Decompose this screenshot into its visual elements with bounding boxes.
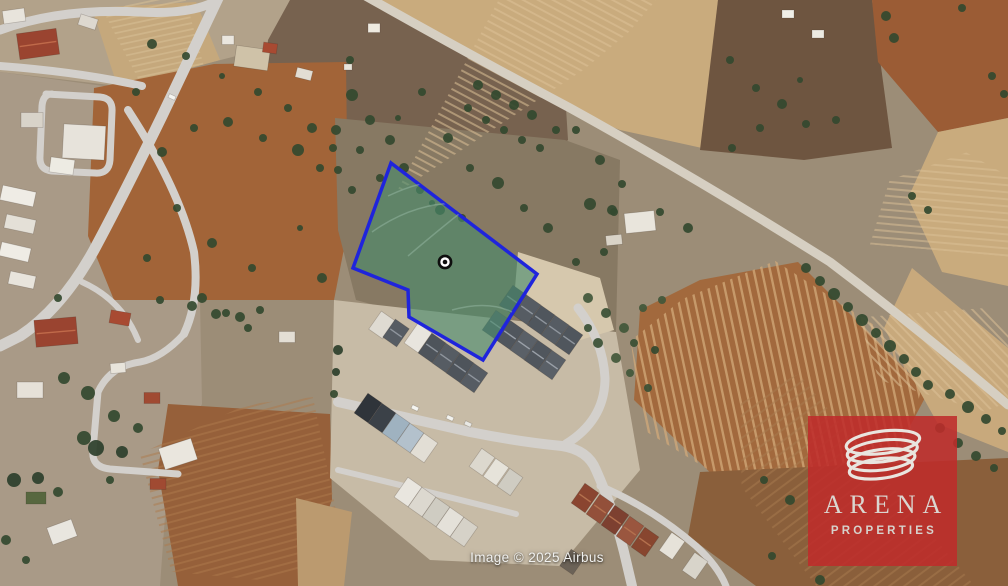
tree [1000, 90, 1008, 98]
building [16, 28, 59, 59]
tree [190, 124, 198, 132]
tree [726, 56, 734, 64]
tree [856, 314, 868, 326]
tree [998, 427, 1006, 435]
tree [924, 206, 932, 214]
tree [466, 164, 474, 172]
building [34, 317, 78, 348]
tree [584, 324, 592, 332]
tree [116, 446, 128, 458]
tree [527, 110, 537, 120]
tree [644, 384, 652, 392]
tree [911, 367, 921, 377]
tree [518, 136, 526, 144]
tree [889, 33, 899, 43]
field-darkscrub-ne [700, 0, 892, 160]
tree [482, 116, 490, 124]
tree [651, 346, 659, 354]
building [144, 393, 160, 404]
tree [595, 155, 605, 165]
tree [330, 390, 338, 398]
tree [77, 431, 91, 445]
tree [182, 52, 190, 60]
tree [284, 104, 292, 112]
tree [981, 414, 991, 424]
tree [333, 345, 343, 355]
building [812, 30, 824, 38]
plot-marker [438, 255, 453, 270]
tree [520, 204, 528, 212]
building [2, 8, 26, 24]
tree [832, 116, 840, 124]
tree [292, 144, 304, 156]
building [262, 42, 277, 54]
tree [815, 276, 825, 286]
tree [572, 258, 580, 266]
tree [990, 464, 998, 472]
tree [728, 144, 736, 152]
tree [509, 100, 519, 110]
arena-rings-icon [840, 428, 926, 486]
building [62, 124, 106, 160]
tree [572, 126, 580, 134]
tree [962, 401, 974, 413]
tree [802, 120, 810, 128]
tree [600, 248, 608, 256]
building [624, 210, 656, 233]
tree [346, 56, 354, 64]
tree [492, 177, 504, 189]
tree [207, 238, 217, 248]
tree [639, 304, 647, 312]
tree [583, 293, 593, 303]
tree [248, 264, 256, 272]
tree [630, 339, 638, 347]
tree [173, 204, 181, 212]
tree [843, 302, 853, 312]
tree [871, 328, 881, 338]
building [26, 492, 46, 504]
tree [884, 340, 896, 352]
tree [797, 77, 803, 83]
building [279, 332, 295, 343]
tree [923, 380, 933, 390]
tree [88, 440, 104, 456]
building [49, 157, 75, 175]
tree [601, 308, 611, 318]
tree [908, 192, 916, 200]
brand-subtitle: PROPERTIES [831, 525, 937, 537]
tree [760, 476, 768, 484]
tree [607, 205, 617, 215]
tree [945, 389, 955, 399]
tree [211, 309, 221, 319]
building [222, 36, 234, 45]
tree [157, 147, 167, 157]
tree [756, 124, 764, 132]
building [21, 113, 43, 128]
tree [385, 135, 395, 145]
tree [108, 410, 120, 422]
tree [197, 293, 207, 303]
tree [348, 186, 356, 194]
building [150, 479, 166, 490]
tree [658, 296, 666, 304]
satellite-image: Image © 2025 Airbus ARENA PROPERTIES [0, 0, 1008, 586]
tree [971, 451, 981, 461]
building [782, 10, 794, 18]
tree [356, 146, 364, 154]
tree [235, 312, 245, 322]
tree [464, 104, 472, 112]
tree [656, 208, 664, 216]
tree [307, 123, 317, 133]
tree [147, 39, 157, 49]
tree [785, 495, 795, 505]
tree [259, 134, 267, 142]
building [17, 382, 43, 398]
tree [815, 575, 825, 585]
building [368, 24, 380, 33]
tree [81, 386, 95, 400]
tree [768, 552, 776, 560]
tree [256, 306, 264, 314]
tree [222, 309, 230, 317]
tree [106, 476, 114, 484]
tree [536, 144, 544, 152]
tree [32, 472, 44, 484]
field-tan-bottom [296, 498, 352, 586]
tree [881, 11, 891, 21]
tree [801, 263, 811, 273]
tree [316, 164, 324, 172]
building [344, 64, 352, 70]
tree [365, 115, 375, 125]
tree [53, 487, 63, 497]
tree [219, 73, 225, 79]
tree [491, 90, 501, 100]
tree [332, 368, 340, 376]
tree [22, 556, 30, 564]
tree [346, 89, 358, 101]
tree [593, 338, 603, 348]
tree [683, 223, 693, 233]
tree [473, 80, 483, 90]
tree [156, 296, 164, 304]
tree [187, 301, 197, 311]
tree [899, 354, 909, 364]
tree [500, 126, 508, 134]
tree [958, 4, 966, 12]
tree [395, 115, 401, 121]
tree [752, 84, 760, 92]
tree [988, 72, 996, 80]
tree [297, 225, 303, 231]
tree [611, 353, 621, 363]
tree [618, 180, 626, 188]
tree [331, 125, 341, 135]
tree [626, 369, 634, 377]
tree [543, 223, 553, 233]
tree [443, 133, 453, 143]
tree [619, 323, 629, 333]
brand-name: ARENA [824, 492, 949, 518]
tree [7, 473, 21, 487]
tree [1, 535, 11, 545]
tree [254, 88, 262, 96]
imagery-attribution: Image © 2025 Airbus [470, 550, 604, 565]
tree [54, 294, 62, 302]
tree [132, 88, 140, 96]
tree [777, 99, 787, 109]
tree [334, 166, 342, 174]
tree [584, 198, 596, 210]
tree [143, 254, 151, 262]
building [110, 362, 126, 373]
building [606, 234, 623, 246]
tree [418, 88, 426, 96]
tree [133, 423, 143, 433]
tree [244, 324, 252, 332]
tree [58, 372, 70, 384]
tree [329, 144, 337, 152]
tree [223, 117, 233, 127]
agency-watermark: ARENA PROPERTIES [808, 416, 957, 566]
tree [828, 288, 840, 300]
tree [317, 273, 327, 283]
tree [552, 126, 560, 134]
